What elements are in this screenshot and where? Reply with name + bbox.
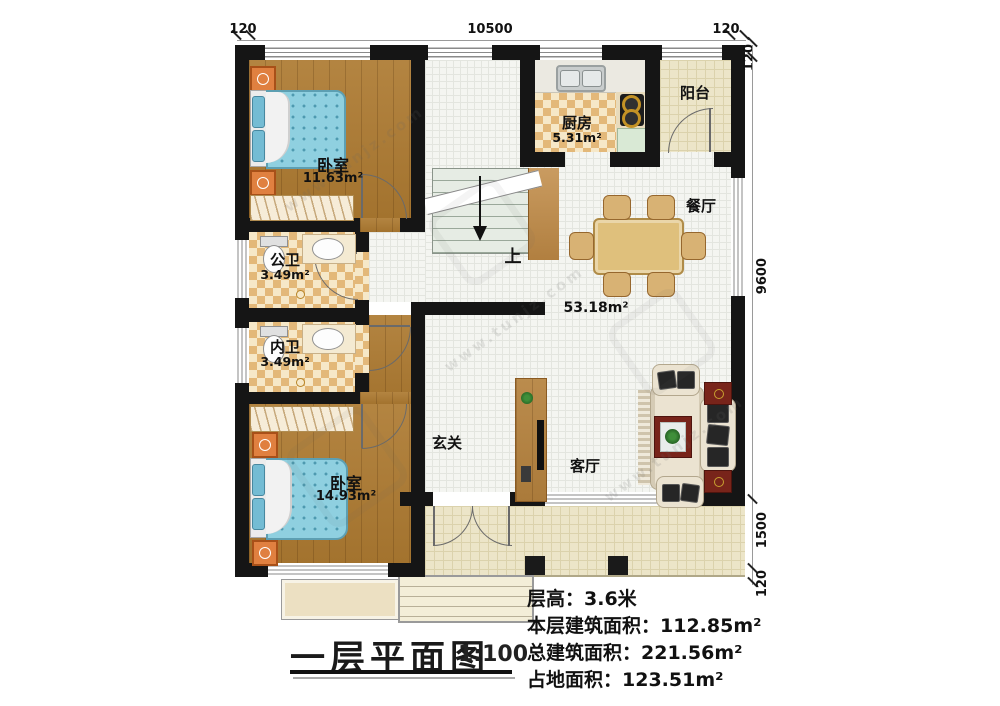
wall-kitchen-west bbox=[520, 45, 535, 167]
title-underline-shadow bbox=[293, 677, 515, 679]
entry-door-right-leaf bbox=[508, 506, 510, 546]
wall-kitchen-balcony bbox=[645, 45, 660, 167]
wall-bedroom1-south-stub bbox=[400, 218, 425, 232]
tv-screen bbox=[537, 420, 544, 470]
balcony-door-leaf bbox=[709, 108, 711, 152]
wall-mid-vertical bbox=[411, 302, 425, 577]
wall-kitchen-south-b bbox=[610, 152, 645, 167]
wall-bedroom2-north bbox=[235, 392, 360, 404]
dim-line-top bbox=[237, 40, 746, 41]
burner bbox=[622, 109, 641, 128]
dim-top-span: 10500 bbox=[467, 22, 512, 37]
open-area-label: 53.18m² bbox=[563, 300, 628, 316]
window-bedroom2-south bbox=[268, 563, 388, 577]
dim-top-right: 120 bbox=[712, 22, 739, 37]
window-bath-inner-west bbox=[235, 328, 249, 383]
wall-bath-divider bbox=[235, 308, 369, 322]
wall-bath-east-3 bbox=[355, 373, 369, 392]
cabinet-plant bbox=[521, 392, 533, 404]
window-kitchen-north bbox=[540, 45, 602, 60]
pillow bbox=[252, 498, 265, 530]
window-dining-east bbox=[731, 178, 745, 296]
bedroom2-door-opening bbox=[360, 392, 411, 404]
balcony-railing-north bbox=[662, 45, 722, 60]
pillow bbox=[252, 464, 265, 496]
wall-balcony-south bbox=[714, 152, 731, 167]
entry-steps bbox=[398, 575, 534, 623]
nightstand bbox=[250, 66, 276, 92]
dim-right-bottom: 120 bbox=[755, 570, 770, 597]
porch-pillar bbox=[608, 556, 628, 575]
title-scale: 1:100 bbox=[458, 642, 528, 667]
bath-inner-door-leaf bbox=[369, 325, 410, 327]
window-hall-north bbox=[428, 45, 492, 60]
sink-basin-oval bbox=[312, 328, 344, 350]
window-bedroom1-north bbox=[265, 45, 370, 60]
dining-chair bbox=[569, 232, 594, 260]
dining-chair bbox=[603, 195, 631, 220]
sofa-bottom-chair bbox=[656, 476, 704, 508]
sink-basin bbox=[582, 70, 602, 87]
side-platform bbox=[282, 580, 398, 619]
stat-floor-area: 本层建筑面积：112.85m² bbox=[527, 611, 761, 638]
dining-chair bbox=[647, 195, 675, 220]
balcony-label: 阳台 bbox=[680, 82, 710, 103]
bedroom1-door-opening bbox=[360, 218, 400, 232]
dim-top-left: 120 bbox=[229, 22, 256, 37]
floor-plan-sheet: 卧室 11.63m² 公卫 3.49m² 内卫 3.49m² 卧室 14.93m… bbox=[0, 0, 1000, 706]
porch-corner-pillar bbox=[717, 556, 743, 575]
bath-inner-door-opening bbox=[355, 325, 369, 373]
stat-total-area: 总建筑面积：221.56m² bbox=[527, 638, 742, 665]
nightstand bbox=[252, 432, 278, 458]
stat-floor-height: 层高：3.6米 bbox=[527, 584, 637, 611]
nightstand bbox=[252, 540, 278, 566]
bath-inner-area: 3.49m² bbox=[260, 354, 309, 369]
bath-public-area: 3.49m² bbox=[260, 267, 309, 282]
hall-corridor-band-floor bbox=[369, 232, 425, 302]
sink-basin bbox=[560, 70, 580, 87]
sink-basin-oval bbox=[312, 238, 344, 260]
wall-bath-east-2 bbox=[355, 300, 369, 325]
living-label: 客厅 bbox=[570, 455, 600, 476]
nightstand bbox=[250, 170, 276, 196]
floor-drain bbox=[296, 378, 305, 387]
dim-line-right bbox=[752, 45, 753, 585]
cabinet-speaker bbox=[521, 466, 531, 482]
title-underline bbox=[290, 670, 512, 674]
foyer-label: 玄关 bbox=[432, 432, 462, 453]
pillow bbox=[252, 96, 265, 128]
stat-footprint-area: 占地面积：123.51m² bbox=[527, 665, 723, 692]
wall-bedroom1-east bbox=[411, 45, 425, 232]
wall-bath-east-1 bbox=[355, 232, 369, 252]
stove bbox=[620, 94, 644, 126]
dining-chair bbox=[681, 232, 706, 260]
kitchen-area: 5.31m² bbox=[552, 130, 601, 145]
dining-table bbox=[593, 218, 684, 275]
entry-door-left-leaf bbox=[433, 506, 435, 546]
dining-label: 餐厅 bbox=[686, 195, 716, 216]
dining-chair bbox=[603, 272, 631, 297]
dim-right-porch: 1500 bbox=[755, 512, 770, 548]
kitchen-sink bbox=[556, 65, 606, 92]
pillow bbox=[252, 130, 265, 162]
wall-kitchen-south-a bbox=[535, 152, 565, 167]
floor-drain bbox=[296, 290, 305, 299]
window-bath-public-west bbox=[235, 240, 249, 298]
corner-table bbox=[704, 470, 732, 493]
dim-right-main: 9600 bbox=[755, 258, 770, 294]
porch-pillar bbox=[525, 556, 545, 575]
